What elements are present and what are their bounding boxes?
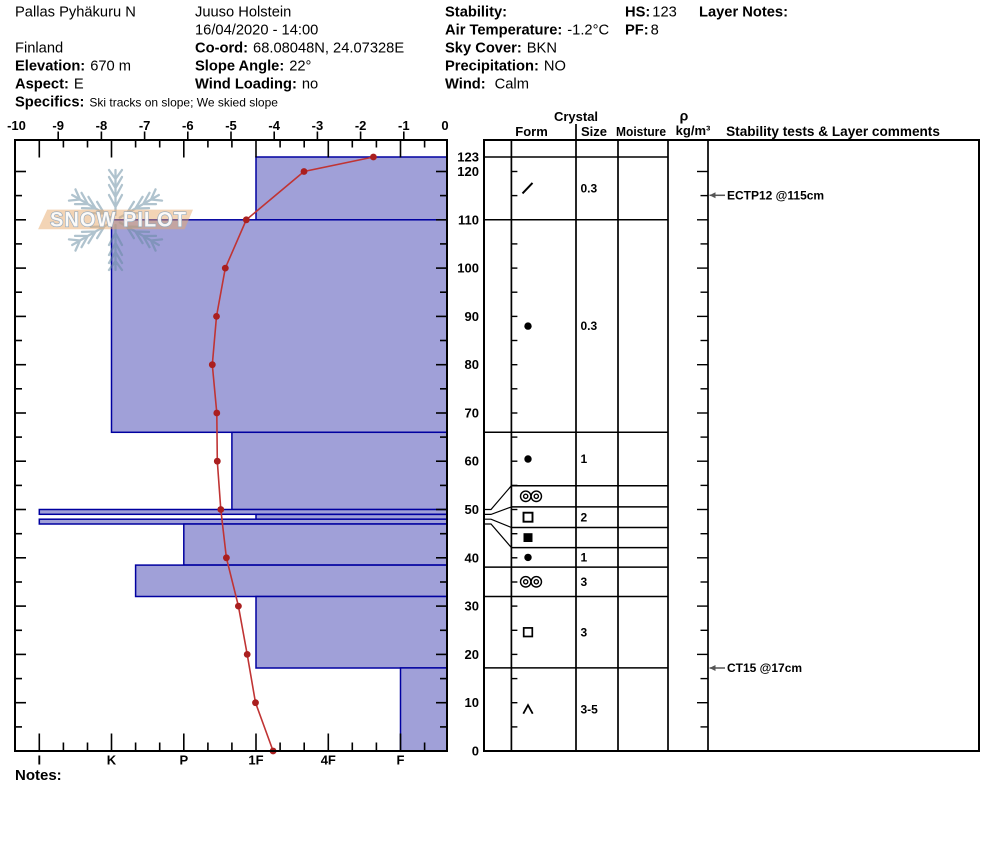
svg-text:20: 20 (465, 647, 479, 662)
svg-text:F: F (397, 753, 405, 768)
svg-text:-6: -6 (182, 118, 194, 133)
svg-text:60: 60 (465, 454, 479, 469)
svg-text:K: K (107, 753, 117, 768)
svg-text:-4: -4 (268, 118, 280, 133)
svg-text:1F: 1F (248, 753, 263, 768)
svg-text:1: 1 (581, 551, 588, 565)
svg-text:Elevation:670 m: Elevation:670 m (15, 59, 131, 75)
svg-text:100: 100 (457, 261, 479, 276)
svg-text:10: 10 (465, 695, 479, 710)
svg-text:30: 30 (465, 599, 479, 614)
svg-text:50: 50 (465, 502, 479, 517)
svg-text:Form: Form (515, 124, 548, 139)
svg-text:0: 0 (441, 118, 448, 133)
svg-text:16/04/2020 - 14:00: 16/04/2020 - 14:00 (195, 23, 318, 39)
svg-text:0.3: 0.3 (581, 319, 598, 333)
svg-text:P: P (179, 753, 188, 768)
svg-text:120: 120 (457, 164, 479, 179)
svg-text:Stability tests & Layer commen: Stability tests & Layer comments (726, 124, 940, 139)
svg-text:0.3: 0.3 (581, 182, 598, 196)
svg-text:Crystal: Crystal (554, 109, 598, 124)
svg-text:Air Temperature:-1.2°C: Air Temperature:-1.2°C (445, 23, 609, 39)
svg-text:PF:8: PF:8 (625, 23, 659, 39)
svg-text:kg/m³: kg/m³ (676, 123, 711, 138)
svg-text:I: I (37, 753, 41, 768)
svg-text:-10: -10 (7, 118, 26, 133)
svg-text:Slope Angle:22°: Slope Angle:22° (195, 59, 311, 75)
svg-text:-8: -8 (96, 118, 108, 133)
svg-text:-5: -5 (225, 118, 237, 133)
svg-text:Layer Notes:: Layer Notes: (699, 5, 788, 21)
svg-text:Precipitation:NO: Precipitation:NO (445, 59, 566, 75)
svg-text:Size: Size (581, 124, 607, 139)
svg-text:Notes:: Notes: (15, 767, 62, 784)
svg-text:-9: -9 (52, 118, 64, 133)
svg-text:70: 70 (465, 406, 479, 421)
svg-text:Aspect:E: Aspect:E (15, 77, 84, 93)
svg-text:-3: -3 (312, 118, 324, 133)
svg-text:110: 110 (458, 212, 479, 227)
svg-text:SNOW PILOT: SNOW PILOT (50, 208, 187, 232)
svg-text:-2: -2 (355, 118, 367, 133)
svg-text:-7: -7 (139, 118, 151, 133)
svg-text:Sky Cover:BKN: Sky Cover:BKN (445, 41, 557, 57)
svg-text:90: 90 (465, 309, 479, 324)
svg-text:1: 1 (581, 452, 588, 466)
svg-text:Moisture: Moisture (616, 124, 666, 139)
svg-text:-1: -1 (398, 118, 410, 133)
svg-text:40: 40 (465, 550, 479, 565)
svg-text:123: 123 (457, 150, 479, 165)
svg-text:Specifics:Ski tracks on slope;: Specifics:Ski tracks on slope; We skied … (15, 95, 278, 111)
svg-text:4F: 4F (321, 753, 336, 768)
svg-text:Finland: Finland (15, 41, 63, 57)
svg-text:3: 3 (581, 625, 588, 639)
svg-text:ECTP12 @115cm: ECTP12 @115cm (727, 189, 824, 203)
svg-text:Stability:: Stability: (445, 5, 507, 21)
svg-text:Pallas Pyhäkuru N: Pallas Pyhäkuru N (15, 5, 136, 21)
svg-text:3: 3 (581, 575, 588, 589)
svg-text:Juuso Holstein: Juuso Holstein (195, 5, 291, 21)
svg-text:CT15 @17cm: CT15 @17cm (727, 661, 802, 675)
svg-text:2: 2 (581, 510, 588, 524)
svg-text:80: 80 (465, 357, 479, 372)
svg-text:Co-ord:68.08048N, 24.07328E: Co-ord:68.08048N, 24.07328E (195, 41, 404, 57)
svg-text:ρ: ρ (680, 108, 689, 124)
svg-text:3-5: 3-5 (581, 703, 599, 717)
svg-text:0: 0 (472, 744, 479, 759)
